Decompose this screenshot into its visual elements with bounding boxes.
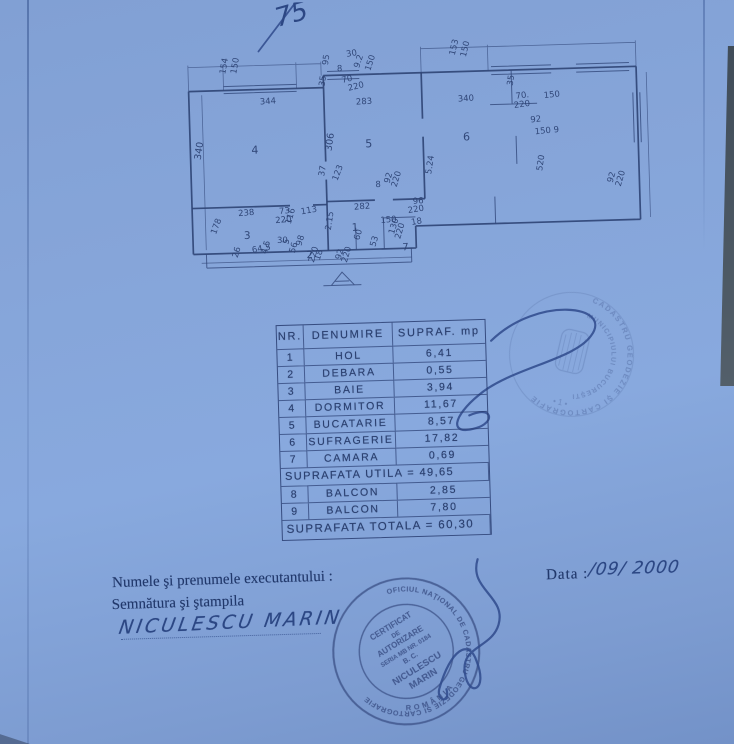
faint-stamp-outer-text: CADASTRU GEODEZIE ŞI CARTOGRAFIE (526, 286, 647, 430)
plan-dimension-label: 340 (193, 141, 207, 161)
plan-dimension-label: 95 (321, 54, 332, 66)
plan-dimension-label: 150 (363, 54, 378, 73)
plan-dimension-label: 35 (506, 74, 517, 86)
plan-dimension-label: 8 (337, 64, 343, 74)
plan-dimension-label: 220 (390, 170, 404, 188)
plan-dimension-label: 5.24 (424, 155, 437, 175)
date-label: Data : (546, 566, 589, 584)
faint-round-stamp: CADASTRU GEODEZIE ŞI CARTOGRAFIE MUNICIP… (497, 279, 648, 430)
plan-dimension-label: 37 (317, 165, 328, 177)
plan-dimension-label: 3 (244, 230, 251, 242)
table-cell: 5 (279, 416, 306, 434)
table-cell: NR. (277, 325, 305, 349)
plan-dimension-label: 18 (410, 216, 422, 228)
table-cell: DENUMIRE (304, 323, 394, 349)
area-table: NR.DENUMIRESUPRAF. mp1HOL6,412DEBARA0,55… (276, 319, 492, 541)
plan-dimension-label: 178 (209, 217, 224, 236)
plan-dimension-label: 220 (340, 245, 354, 263)
plan-dimension-label: 306 (324, 132, 338, 152)
plan-dimension-label: 220 (513, 99, 530, 111)
handwritten-page-number: 75 (257, 0, 312, 52)
plan-dimension-label: 26 (231, 246, 244, 259)
plan-dimension-label: 150 (543, 89, 560, 101)
table-cell: 7 (280, 450, 307, 468)
scanned-document-photo: 75 154150953089.215035702201531503442833… (0, 0, 734, 744)
handwritten-date: /09/ 2000 (587, 557, 681, 580)
floor-plan: 154150953089.215035702201531503442833403… (187, 33, 652, 290)
plan-dimension-label: 4 (251, 144, 258, 157)
plan-dimension-label: 344 (260, 96, 277, 107)
table-cell: 9 (282, 502, 309, 520)
plan-dimension-label: 2.15 (324, 211, 337, 231)
plan-dimension-label: 150 (229, 57, 242, 75)
table-cell: 8 (281, 485, 308, 503)
table-cell: 6 (280, 433, 307, 451)
plan-dimension-label: 53 (369, 235, 382, 248)
plan-dimension-label: 238 (238, 208, 255, 219)
table-cell: SUPRAF. mp (393, 320, 486, 346)
paper-content: 75 154150953089.215035702201531503442833… (0, 0, 734, 744)
plan-dimension-label: 123 (331, 164, 346, 183)
svg-text:CADASTRU GEODEZIE ŞI CARTOGRAF: CADASTRU GEODEZIE ŞI CARTOGRAFIE (526, 286, 647, 430)
plan-dimension-label: 113 (300, 205, 318, 218)
paper-crease-right (703, 0, 705, 250)
table-cell: 2 (278, 365, 305, 383)
table-cell: 3 (278, 382, 305, 400)
table-cell: 1 (277, 348, 304, 366)
plan-dimension-label: 520 (535, 154, 547, 172)
plan-dimension-label: 150 (459, 40, 472, 58)
plan-dimension-label: 60 (352, 228, 365, 241)
plan-dimension-label: 150 9 (534, 125, 559, 137)
plan-dimension-label: 220 (407, 204, 425, 217)
plan-dimension-label: 283 (356, 97, 373, 108)
plan-dimension-label: 7 (402, 242, 409, 253)
plan-dimension-label: 340 (458, 94, 475, 105)
handwritten-number-text: 75 (271, 0, 311, 34)
plan-dimension-label: 6 (463, 130, 470, 143)
table-cell: 4 (279, 399, 306, 417)
plan-dimension-label: 220 (614, 169, 628, 187)
level-marker-icon (323, 272, 361, 286)
plan-dimension-label: 35 (318, 75, 329, 87)
paper-crease-left (27, 0, 29, 744)
plan-dimension-label: 92 (530, 114, 542, 125)
plan-dimension-label: 5 (365, 137, 372, 150)
plan-dimension-label: 8 (375, 180, 381, 190)
plan-dimension-label: 282 (354, 201, 371, 212)
